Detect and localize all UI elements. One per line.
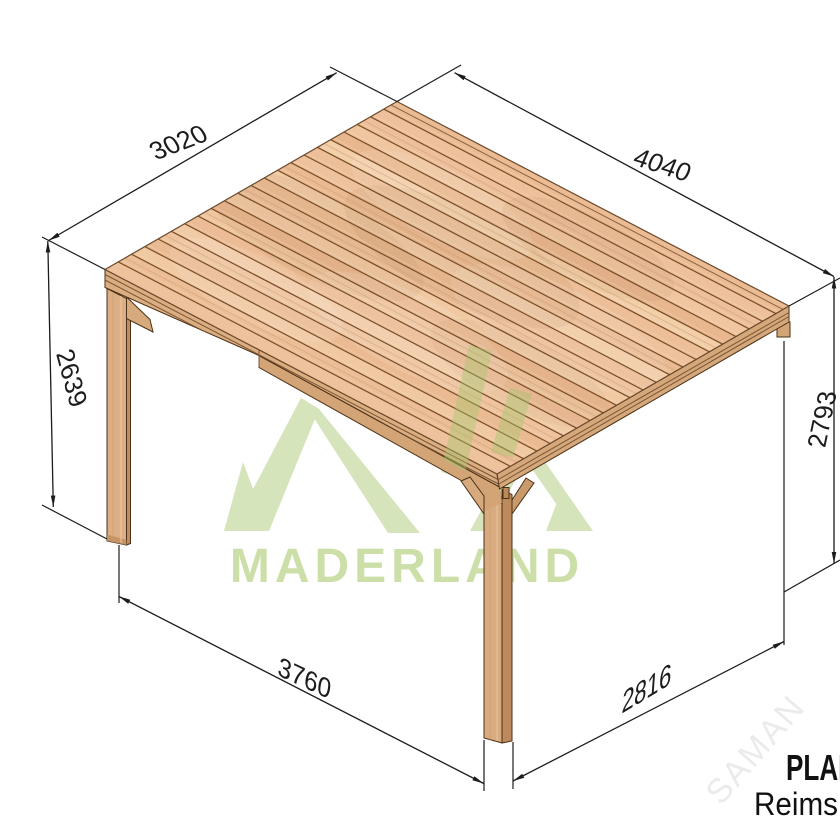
svg-text:PLAN: PLAN <box>786 747 840 788</box>
svg-text:3760: 3760 <box>276 651 334 705</box>
svg-text:4040: 4040 <box>629 142 696 188</box>
svg-text:MADERLAND: MADERLAND <box>230 540 584 593</box>
svg-text:Reims: Reims <box>754 786 838 822</box>
svg-text:2639: 2639 <box>50 344 93 412</box>
svg-text:3020: 3020 <box>144 119 214 166</box>
